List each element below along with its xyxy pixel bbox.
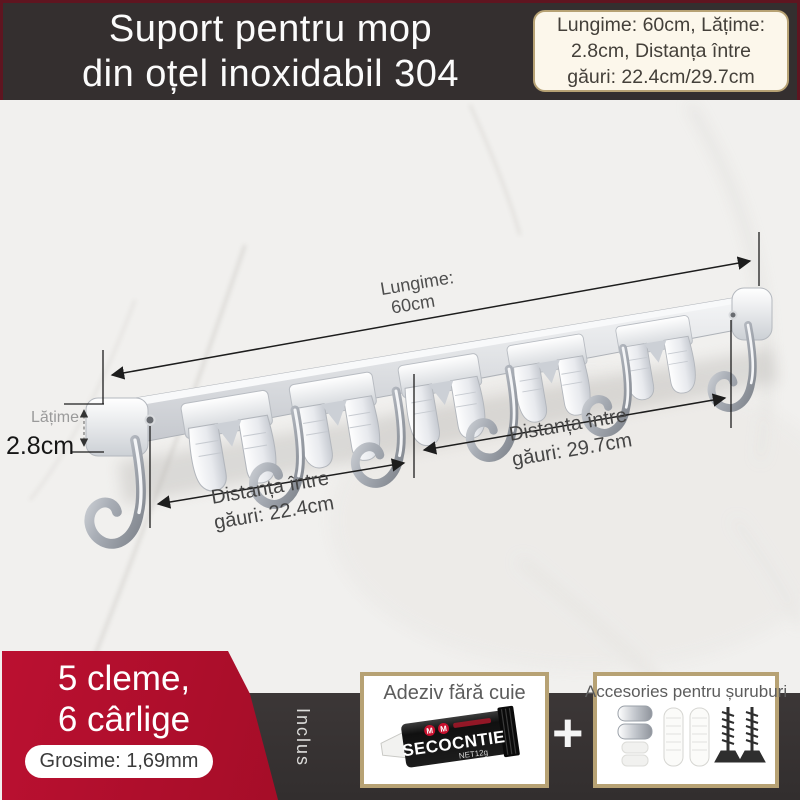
tube-logo-letter-2: M	[439, 724, 447, 734]
cap-covers-icon	[618, 706, 652, 766]
product-page: Lungime: 60cm Distanța între găuri: 22.4…	[0, 0, 800, 800]
thickness-value: Grosime: 1,69mm	[40, 750, 199, 773]
badge-text: 5 cleme, 6 cârlige	[2, 651, 246, 740]
thickness-pill: Grosime: 1,69mm	[25, 745, 213, 778]
width-value: 2.8cm	[6, 432, 74, 460]
header-banner: Suport pentru mop din oțel inoxidabil 30…	[0, 0, 800, 100]
spec-box: Lungime: 60cm, Lățime: 2.8cm, Distanța î…	[533, 10, 789, 92]
spec-line2: 2.8cm, Distanța între	[571, 38, 751, 64]
page-title-line2: din oțel inoxidabil 304	[82, 52, 459, 97]
page-title: Suport pentru mop din oțel inoxidabil 30…	[3, 3, 538, 100]
accessories-box: Accesories pentru șuruburi	[593, 672, 779, 788]
included-label: Inclus	[292, 708, 313, 792]
tube-logo-letter-1: M	[425, 726, 433, 736]
screw-hole-left	[146, 416, 155, 425]
badge-line2: 6 cârlige	[2, 699, 246, 740]
wall-plugs-icon	[664, 708, 709, 766]
adhesive-box: Adeziv fără cuie M M SECOCNTIE	[360, 672, 549, 788]
spec-line3: găuri: 22.4cm/29.7cm	[567, 64, 755, 90]
screws-icon	[715, 707, 765, 762]
accessories-title: Accesories pentru șuruburi	[585, 682, 787, 702]
page-title-line1: Suport pentru mop	[109, 7, 432, 52]
badge-line1: 5 cleme,	[2, 658, 246, 699]
accessories-icons	[602, 704, 770, 770]
glue-tube-icon: M M SECOCNTIE NET12g	[371, 698, 538, 778]
clamp-count-badge: 5 cleme, 6 cârlige Grosime: 1,69mm	[2, 651, 280, 800]
spec-line1: Lungime: 60cm, Lățime:	[557, 12, 765, 38]
width-label: Lățime	[31, 409, 79, 426]
plus-sign: +	[552, 706, 584, 760]
screw-hole-right	[730, 312, 737, 319]
